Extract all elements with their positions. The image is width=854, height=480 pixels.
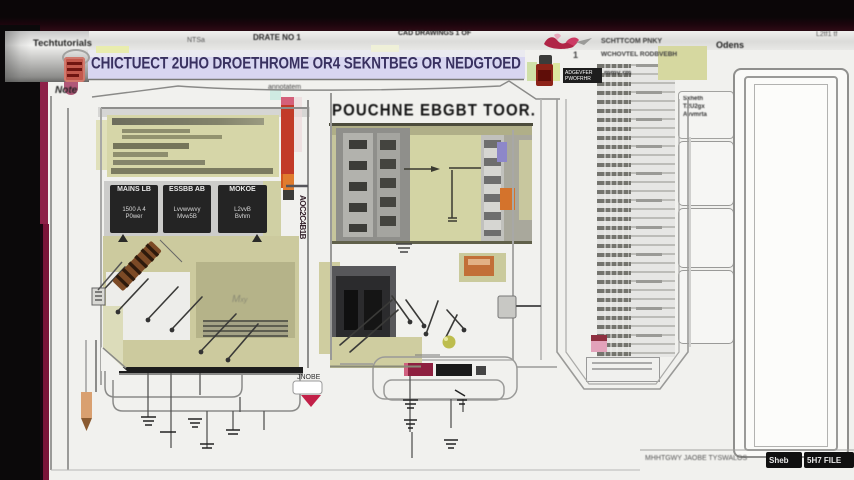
svg-text:JNOBE: JNOBE (297, 374, 321, 381)
